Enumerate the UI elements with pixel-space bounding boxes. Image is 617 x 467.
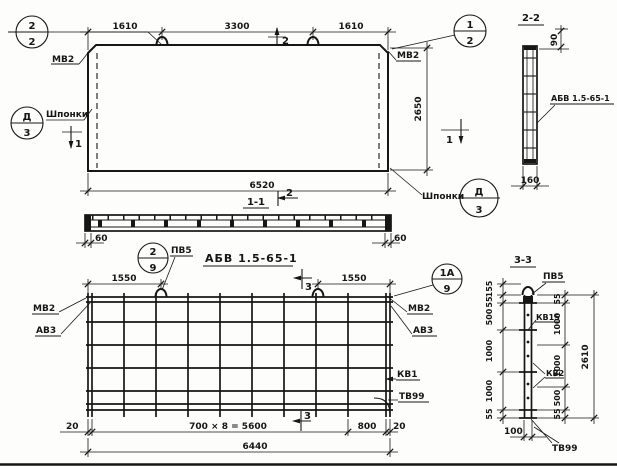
label-abv: АБВ 1.5-65-1 [551, 94, 610, 103]
dim-500: 500 [553, 389, 562, 406]
dim-1610-left: 1610 [112, 22, 137, 32]
lifting-hook-icon [313, 289, 324, 297]
label-kv2-text: КВ2 [546, 369, 564, 378]
drawing-sheet: 1610 3300 1610 2 2 2 1 2 [0, 0, 617, 467]
dim-20-right: 20 [393, 422, 406, 432]
dim-3300: 3300 [224, 22, 249, 32]
dim-6440: 6440 [242, 442, 267, 452]
callout-top: 1А [440, 268, 455, 279]
label-mv2: МВ2 [408, 304, 430, 314]
dim-chain-left: 155 55 500 1000 1000 55 [485, 278, 521, 424]
callout-2-9: 2 9 ПВ5 [138, 243, 193, 290]
panel-elevation: 1610 3300 1610 2 2 2 1 2 [8, 15, 500, 217]
bar-label-mv2-right: МВ2 [387, 296, 433, 314]
cut-label-2: 2 [282, 36, 289, 47]
label-pv5: ПВ5 [543, 272, 564, 282]
label-shponki: Шпонки [46, 110, 88, 120]
dim-500: 500 [485, 308, 494, 325]
dim-2650: 2650 [414, 96, 424, 121]
cut-label-3: 3 [305, 282, 312, 293]
dim-total-chain: 6440 [80, 438, 398, 457]
dim-6520: 6520 [249, 181, 274, 191]
label-av3: АВ3 [36, 326, 56, 336]
dim-60: 60 [394, 234, 407, 244]
bar-label-mv2-left: МВ2 [32, 298, 86, 314]
dim-55: 55 [485, 408, 494, 420]
section-1-1: 1-1 2 60 [76, 188, 407, 248]
callout-1a-9: 1А 9 [394, 264, 462, 296]
callout-bottom: 3 [476, 205, 483, 216]
label-tv99: ТВ99 [399, 392, 425, 402]
label-shponki: Шпонки [422, 192, 464, 202]
dim-bottom-chain: 20 700 × 8 = 5600 800 20 [60, 419, 406, 436]
label-mv2: МВ2 [33, 304, 55, 314]
cut-label-1: 1 [446, 135, 453, 146]
dim-1000: 1000 [485, 339, 494, 362]
wire-label-tv99: ТВ99 [388, 392, 429, 402]
dim-100-text: 100 [504, 427, 523, 437]
slab-profile [85, 215, 391, 231]
detail-callout-1-2: 1 2 [392, 15, 486, 49]
dim-90-text: 90 [550, 34, 560, 47]
cut-mark-3-top: 3 [293, 269, 312, 293]
label-av3: АВ3 [413, 326, 433, 336]
cut-label-3: 3 [304, 411, 311, 422]
section-title: 1-1 [247, 197, 265, 208]
dim-20-left: 20 [66, 422, 79, 432]
lifting-hook-icon [156, 289, 167, 297]
dim-spacing: 700 × 8 = 5600 [189, 422, 267, 432]
callout-top: Д [23, 112, 32, 123]
keys-callout-left: Д 3 Шпонки [11, 107, 92, 139]
keys-callout-right: Д 3 Шпонки [390, 168, 500, 217]
callout-bottom: 9 [444, 284, 451, 295]
label-kv1: КВ1 [397, 370, 417, 380]
cut-label-1: 1 [75, 139, 82, 150]
dim-55: 55 [485, 296, 494, 308]
dim-160: 160 [511, 166, 549, 190]
dim-width: 6520 [80, 173, 396, 196]
panel-cross-section [523, 46, 537, 164]
callout-top: 1 [467, 20, 474, 31]
detail-callout-2-2: 2 2 [8, 16, 161, 48]
plate-label-mv2-left: МВ2 [51, 50, 90, 65]
cut-mark-1-left: 1 [62, 126, 82, 150]
section-title: 3-3 [514, 255, 532, 266]
plate-label-mv2-right: МВ2 [388, 51, 421, 61]
dim-1550: 1550 [341, 274, 366, 284]
dim-hook-right: 1550 [312, 274, 396, 293]
dim-1550: 1550 [111, 274, 136, 284]
section-3-3: 3-3 ПВ5 [485, 255, 599, 454]
dim-end-right: 60 [372, 233, 407, 248]
dim-1000: 1000 [485, 379, 494, 402]
panel-outline [88, 45, 388, 171]
mesh-label: АБВ 1.5-65-1 [537, 94, 614, 123]
callout-bottom: 9 [150, 263, 157, 274]
callout-bottom: 3 [24, 128, 31, 139]
plan-title: АБВ 1.5-65-1 [205, 252, 298, 265]
dim-55: 55 [553, 293, 562, 305]
dim-800: 800 [358, 422, 377, 432]
dim-160-text: 160 [521, 176, 540, 186]
dim-2610: 2610 [581, 344, 591, 369]
label-pv5: ПВ5 [171, 246, 192, 256]
dim-90: 90 [539, 25, 569, 53]
dim-height: 2650 [390, 42, 433, 176]
mesh-edge-view [519, 287, 537, 418]
cut-label-2: 2 [286, 188, 293, 199]
callout-bottom: 2 [467, 36, 474, 47]
section-title: 2-2 [522, 13, 540, 24]
dim-55: 55 [553, 408, 562, 420]
callout-top: Д [475, 187, 484, 198]
corner-detail [374, 398, 390, 414]
dim-155: 155 [485, 280, 494, 297]
dim-chain-right: 55 1000 1000 500 55 2610 [537, 290, 599, 424]
dim-60: 60 [95, 234, 108, 244]
dim-end-left: 60 [76, 233, 108, 248]
section-2-2: 2-2 90 АБВ 1.5-65-1 [511, 13, 614, 190]
callout-top: 2 [29, 21, 36, 32]
cut-mark-3-bottom: 3 [292, 411, 311, 431]
dim-1610-right: 1610 [338, 22, 363, 32]
label-kv15-text: КВ15 [536, 313, 560, 322]
reinforcement-plan: 2 9 ПВ5 АБВ 1.5-65-1 [32, 243, 462, 457]
mesh-grid [86, 293, 393, 417]
callout-bottom: 2 [29, 37, 36, 48]
hook-label-pv5: ПВ5 [532, 272, 565, 294]
label-mv2: МВ2 [397, 51, 419, 61]
callout-top: 2 [150, 247, 157, 258]
label-tv99-text: ТВ99 [552, 444, 578, 454]
cut-mark-1-right: 1 [441, 119, 469, 146]
dim-hook-left: 1550 [82, 274, 168, 293]
label-tv99: ТВ99 [531, 419, 578, 454]
